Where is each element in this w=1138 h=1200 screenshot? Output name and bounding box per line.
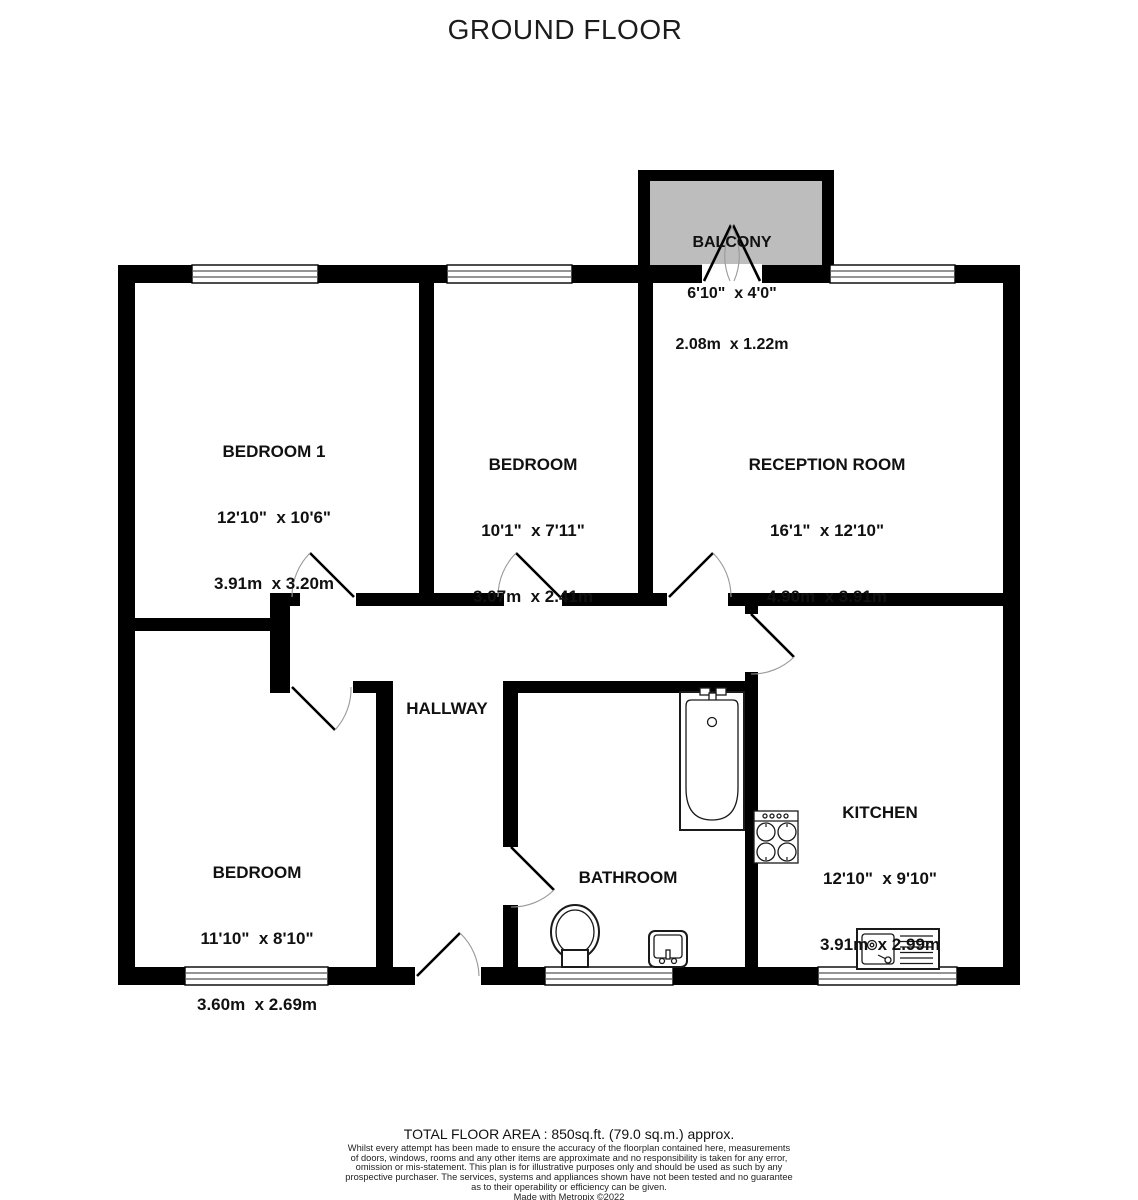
room-label-kitchen: KITCHEN 12'10" x 9'10" 3.91m x 2.99m: [820, 758, 940, 1000]
window: [192, 265, 318, 283]
window: [830, 265, 955, 283]
room-dims-metric: 3.07m x 2.41m: [473, 586, 593, 608]
total-floor-area: TOTAL FLOOR AREA : 850sq.ft. (79.0 sq.m.…: [404, 1126, 734, 1142]
room-dims-metric: 4.90m x 3.91m: [749, 586, 906, 608]
room-name: BALCONY: [676, 234, 789, 251]
room-label-balcony: BALCONY 6'10" x 4'0" 2.08m x 1.22m: [676, 200, 789, 387]
room-label-bathroom: BATHROOM: [579, 823, 678, 933]
room-label-bedroom-1: BEDROOM 1 12'10" x 10'6" 3.91m x 3.20m: [214, 397, 334, 639]
window: [545, 967, 673, 985]
bathtub-icon: [680, 688, 744, 830]
hob-icon: [754, 811, 798, 863]
room-name: RECEPTION ROOM: [749, 454, 906, 476]
room-name: KITCHEN: [820, 802, 940, 824]
disclaimer-text: Whilst every attempt has been made to en…: [345, 1144, 792, 1193]
window: [447, 265, 572, 283]
room-label-bedroom-lower: BEDROOM 11'10" x 8'10" 3.60m x 2.69m: [197, 818, 317, 1060]
room-dims-imperial: 16'1" x 12'10": [749, 520, 906, 542]
room-dims-metric: 3.91m x 3.20m: [214, 573, 334, 595]
page-title: GROUND FLOOR: [448, 14, 683, 46]
room-name: BATHROOM: [579, 867, 678, 889]
room-dims-metric: 3.60m x 2.69m: [197, 994, 317, 1016]
room-name: HALLWAY: [406, 698, 488, 720]
room-label-bedroom-middle: BEDROOM 10'1" x 7'11" 3.07m x 2.41m: [473, 410, 593, 652]
bathroom-sink-icon: [649, 931, 687, 967]
door-bedroom-lower: [292, 687, 351, 730]
room-name: BEDROOM 1: [214, 441, 334, 463]
room-dims-imperial: 10'1" x 7'11": [473, 520, 593, 542]
room-dims-imperial: 12'10" x 10'6": [214, 507, 334, 529]
room-label-hallway: HALLWAY: [406, 654, 488, 764]
room-name: BEDROOM: [197, 862, 317, 884]
room-name: BEDROOM: [473, 454, 593, 476]
door-bathroom: [511, 847, 554, 907]
room-dims-imperial: 6'10" x 4'0": [676, 285, 789, 302]
door-reception-room: [669, 553, 731, 597]
room-dims-imperial: 11'10" x 8'10": [197, 928, 317, 950]
room-dims-metric: 2.08m x 1.22m: [676, 336, 789, 353]
floorplan-page: GROUND FLOOR BALCONY 6'10" x 4'0" 2.08m …: [0, 0, 1138, 1200]
credit-text: Made with Metropix ©2022: [514, 1192, 625, 1200]
room-dims-metric: 3.91m x 2.99m: [820, 934, 940, 956]
room-dims-imperial: 12'10" x 9'10": [820, 868, 940, 890]
room-label-reception-room: RECEPTION ROOM 16'1" x 12'10" 4.90m x 3.…: [749, 410, 906, 652]
